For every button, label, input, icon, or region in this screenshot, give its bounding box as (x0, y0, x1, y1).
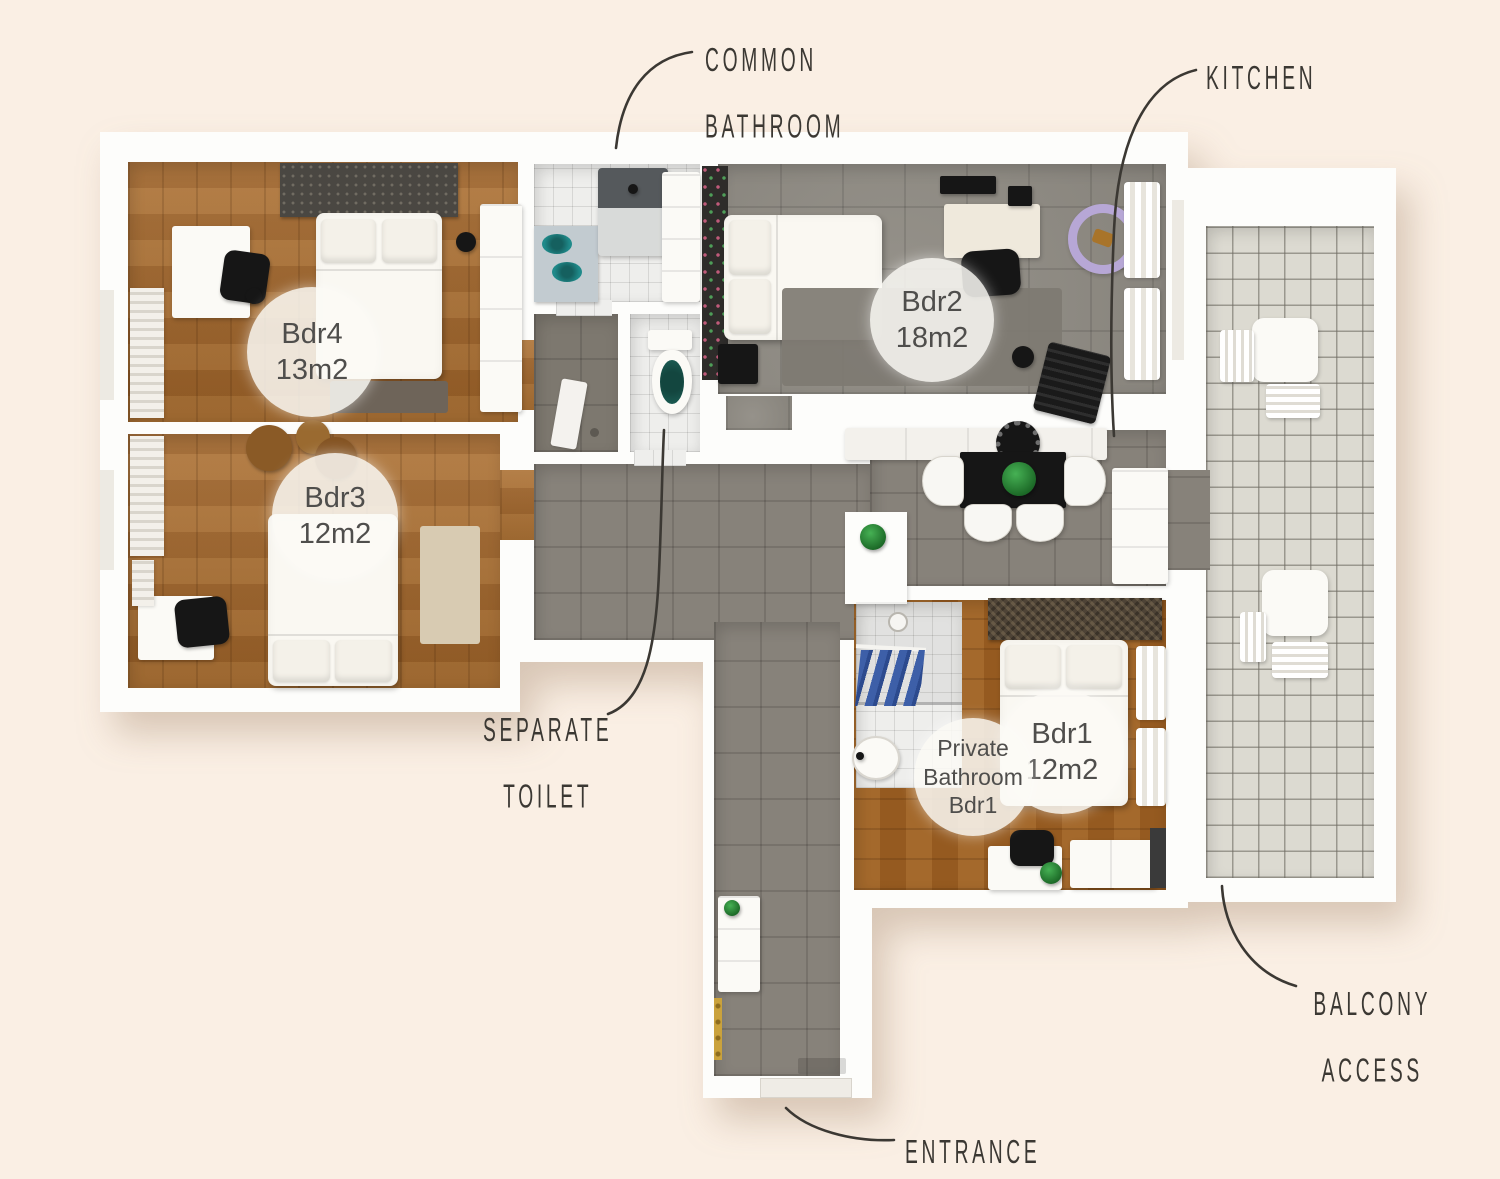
private-bathroom-tap (856, 752, 864, 760)
bathroom-cabinet (662, 172, 700, 302)
bdr1-wardrobe (1150, 828, 1166, 888)
entrance-door-mat (798, 1058, 846, 1074)
room-label-private-bathroom-line: Private (937, 734, 1009, 763)
bdr3-radiator (132, 560, 154, 606)
toilet-bowl (652, 350, 692, 414)
kitchen-chair (922, 456, 964, 506)
bdr3-pillow (335, 640, 392, 682)
room-label-private-bathroom-line: Bathroom (923, 763, 1023, 792)
bdr2-pillow (729, 220, 771, 275)
bdr4-window-blinds (130, 288, 164, 418)
annotation-kitchen-line: KITCHEN (1206, 44, 1316, 111)
bdr2-curtain (1124, 288, 1160, 380)
balcony-chair (1240, 612, 1266, 662)
annotation-common-bathroom: COMMON BATHROOM (705, 26, 844, 159)
room-label-bdr3: Bdr3 12m2 (272, 453, 398, 579)
bdr2-ring-chair-seat (1091, 228, 1115, 248)
bdr1-desk-chair (1010, 830, 1054, 866)
bdr1-headboard-rattan (988, 598, 1162, 640)
room-label-bdr1-area: 12m2 (1026, 752, 1099, 788)
bdr4-floor-lamp (456, 232, 476, 252)
balcony-table (1262, 570, 1328, 636)
bathroom-vanity (534, 226, 598, 302)
bdr2-bed-seam (776, 215, 778, 340)
toilet-seat (660, 360, 684, 404)
bdr3-rug (420, 526, 480, 644)
annotation-separate-toilet-line: SEPARATE (470, 696, 625, 763)
bdr1-curtain (1136, 728, 1166, 806)
balcony-table (1252, 318, 1318, 382)
floor-plan-canvas: Bdr4 13m2 Bdr3 12m2 Bdr2 18m2 Bdr1 12m2 … (0, 0, 1500, 1179)
bdr1-desk-plant (1040, 862, 1062, 884)
room-label-bdr4: Bdr4 13m2 (247, 287, 377, 417)
annotation-balcony-access-line: ACCESS (1302, 1037, 1443, 1104)
door-opening-bdr3 (500, 470, 534, 540)
bdr3-desk-chair (174, 595, 231, 648)
bathroom-sink (552, 262, 582, 282)
floor-entrance-corridor (714, 622, 840, 1076)
window-left-bdr3 (100, 470, 114, 570)
annotation-balcony-access-line: BALCONY (1302, 970, 1443, 1037)
entrance-door (760, 1078, 852, 1098)
balcony-chair (1272, 642, 1328, 678)
bathroom-sink (542, 234, 572, 254)
room-label-private-bathroom: Private Bathroom Bdr1 (914, 718, 1032, 836)
bdr2-pillow (729, 279, 771, 334)
room-label-bdr2-area: 18m2 (896, 320, 969, 356)
entrance-coat-rack (714, 998, 722, 1060)
bdr3-window-blinds (130, 436, 164, 556)
bdr2-speaker (1008, 186, 1032, 206)
bdr2-stool (1012, 346, 1034, 368)
window-left-bdr4 (100, 290, 114, 400)
bdr2-tv (940, 176, 996, 194)
balcony-chair (1266, 384, 1320, 418)
room-label-bdr1-name: Bdr1 (1031, 716, 1092, 752)
bdr4-headboard-rug (280, 163, 458, 217)
kitchen-table-plant (1002, 462, 1036, 496)
bdr3-stool (246, 425, 292, 471)
bdr1-pillow (1005, 645, 1061, 689)
annotation-separate-toilet: SEPARATE TOILET (470, 696, 625, 829)
door-opening-balcony (1164, 470, 1210, 570)
room-label-bdr4-area: 13m2 (276, 352, 349, 388)
bdr1-curtain (1136, 646, 1166, 720)
bathroom-shower (598, 168, 668, 256)
room-label-bdr2-name: Bdr2 (901, 284, 962, 320)
hall-plant (860, 524, 886, 550)
balcony-chair (1220, 330, 1254, 382)
bdr1-pillow (1066, 645, 1122, 689)
shower-room-drain (590, 428, 599, 437)
annotation-common-bathroom-line: COMMON (705, 26, 844, 93)
annotation-separate-toilet-line: TOILET (470, 763, 625, 830)
annotation-entrance: ENTRANCE (905, 1118, 1040, 1179)
annotation-common-bathroom-line: BATHROOM (705, 93, 844, 160)
shower-head-icon (628, 184, 638, 194)
bdr3-pillow (273, 640, 330, 682)
door-opening-bdr2 (726, 396, 792, 430)
door-opening-bathroom (556, 300, 612, 316)
annotation-kitchen: KITCHEN (1206, 44, 1316, 111)
bdr1-dresser (1070, 840, 1156, 888)
bdr2-curtain (1124, 182, 1160, 278)
annotation-balcony-access: BALCONY ACCESS (1302, 970, 1443, 1103)
room-label-bdr4-name: Bdr4 (281, 316, 342, 352)
bdr4-pillow (382, 219, 437, 263)
door-opening-toilet (634, 450, 686, 466)
bdr4-pillow (321, 219, 376, 263)
shower-head-icon (888, 612, 908, 632)
bdr4-bed-seam (316, 269, 442, 271)
kitchen-side-cabinet (1112, 468, 1168, 584)
annotation-entrance-line: ENTRANCE (905, 1118, 1040, 1179)
room-label-bdr3-name: Bdr3 (304, 480, 365, 516)
window-right-bdr2 (1172, 200, 1184, 360)
floor-hallway (534, 464, 870, 640)
bdr3-bed-seam (268, 634, 398, 636)
kitchen-chair (964, 504, 1012, 542)
bdr4-wardrobe (480, 204, 522, 412)
entrance-plant (724, 900, 740, 916)
bdr2-nightstand (718, 344, 758, 384)
bdr4-desk-lamp (246, 288, 262, 304)
kitchen-chair (1064, 456, 1106, 506)
toilet-tank (648, 330, 692, 350)
bdr4-desk-chair (219, 249, 272, 305)
room-label-bdr2: Bdr2 18m2 (870, 258, 994, 382)
private-bathroom-towels (855, 650, 925, 706)
room-label-bdr3-area: 12m2 (299, 516, 372, 552)
kitchen-chair (1016, 504, 1064, 542)
room-label-private-bathroom-line: Bdr1 (949, 791, 998, 820)
